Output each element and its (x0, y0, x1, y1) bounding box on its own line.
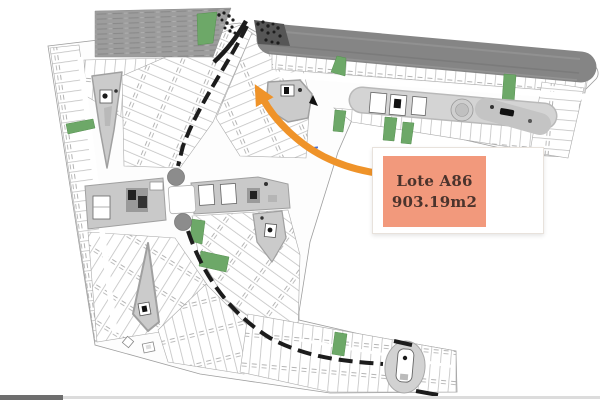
lower-roundabout (175, 214, 192, 231)
lot-callout-area: 903.19m2 (392, 194, 477, 211)
bottom-frame-strip (0, 395, 600, 400)
upper-roundabout (168, 169, 185, 186)
median-island (168, 185, 196, 214)
lot-callout-title: Lote A86 (396, 173, 472, 190)
lot-callout: Lote A86 903.19m2 (383, 156, 486, 227)
callout-card: Lote A86 903.19m2 (372, 147, 544, 234)
site-plan-screenshot: Lote A86 903.19m2 (0, 0, 600, 400)
